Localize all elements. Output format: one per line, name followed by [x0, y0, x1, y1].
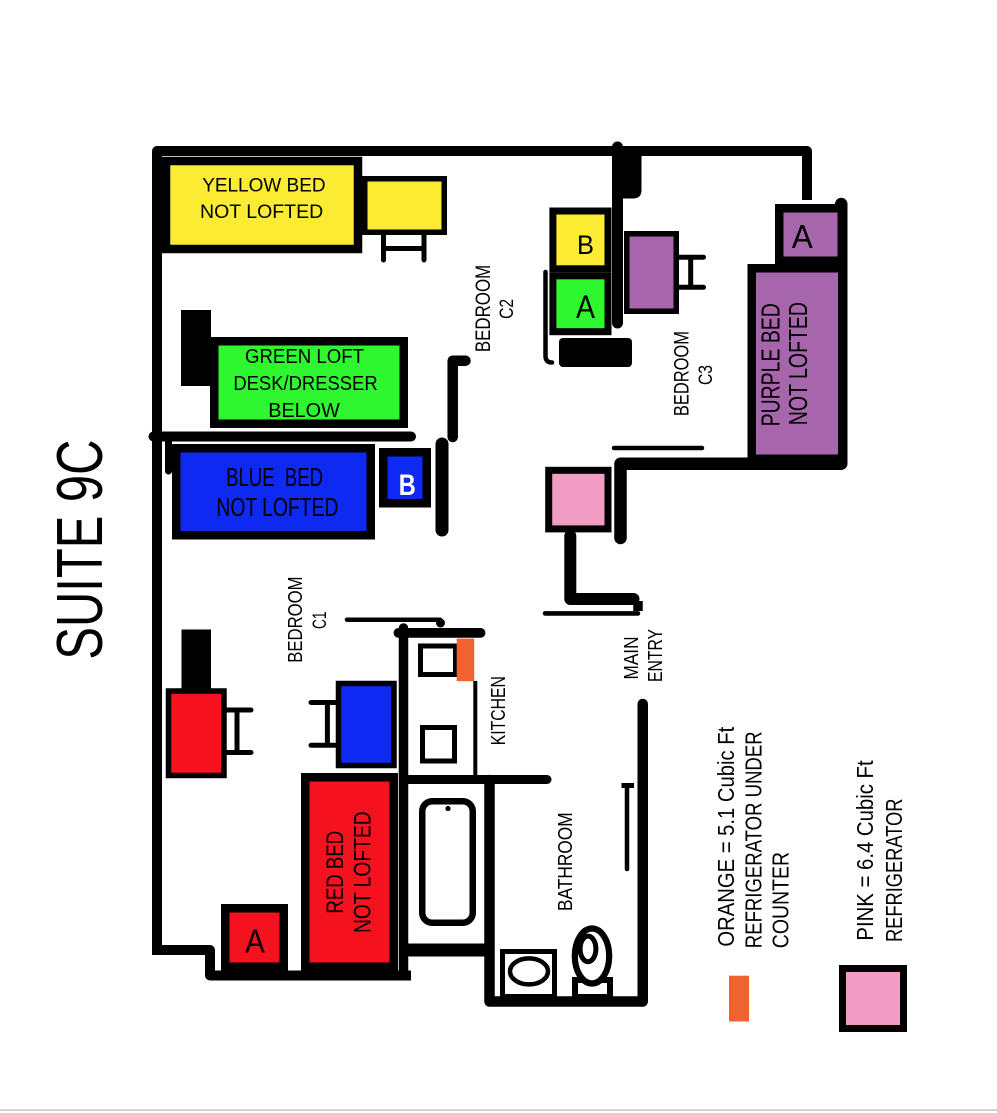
svg-text:C2: C2: [496, 299, 518, 319]
svg-text:NOT LOFTED: NOT LOFTED: [783, 302, 813, 425]
svg-text:DESK/DRESSER: DESK/DRESSER: [233, 372, 377, 395]
svg-text:BATHROOM: BATHROOM: [555, 812, 577, 911]
svg-text:BELOW: BELOW: [268, 399, 340, 422]
svg-text:C3: C3: [695, 365, 717, 385]
svg-text:B: B: [399, 469, 416, 502]
svg-text:A: A: [245, 924, 265, 961]
svg-text:BEDROOM: BEDROOM: [284, 576, 307, 662]
svg-text:YELLOW BED: YELLOW BED: [202, 175, 325, 197]
svg-text:MAIN: MAIN: [621, 637, 643, 680]
svg-text:SUITE 9C: SUITE 9C: [43, 440, 116, 660]
svg-text:B: B: [577, 230, 594, 260]
svg-text:RED BED: RED BED: [322, 831, 349, 914]
svg-text:NOT LOFTED: NOT LOFTED: [216, 492, 338, 522]
svg-text:NOT LOFTED: NOT LOFTED: [200, 201, 323, 223]
svg-text:ENTRY: ENTRY: [645, 629, 667, 682]
svg-text:REFRIGERATOR UNDER: REFRIGERATOR UNDER: [741, 731, 767, 948]
svg-text:REFRIGERATOR: REFRIGERATOR: [881, 799, 907, 943]
svg-text:PINK = 6.4 Cubic Ft: PINK = 6.4 Cubic Ft: [852, 760, 878, 941]
svg-text:KITCHEN: KITCHEN: [488, 676, 510, 745]
svg-text:BEDROOM: BEDROOM: [669, 331, 693, 416]
svg-text:BEDROOM: BEDROOM: [471, 265, 495, 352]
svg-text:GREEN LOFT: GREEN LOFT: [245, 345, 364, 368]
svg-text:C1: C1: [309, 612, 331, 630]
svg-text:ORANGE = 5.1 Cubic Ft: ORANGE = 5.1 Cubic Ft: [713, 726, 739, 946]
svg-text:NOT LOFTED: NOT LOFTED: [350, 811, 377, 933]
svg-text:A: A: [792, 218, 813, 255]
svg-text:BLUE BED: BLUE BED: [226, 462, 323, 492]
svg-text:PURPLE BED: PURPLE BED: [756, 303, 786, 426]
svg-text:COUNTER: COUNTER: [768, 852, 794, 948]
svg-text:A: A: [576, 289, 596, 325]
